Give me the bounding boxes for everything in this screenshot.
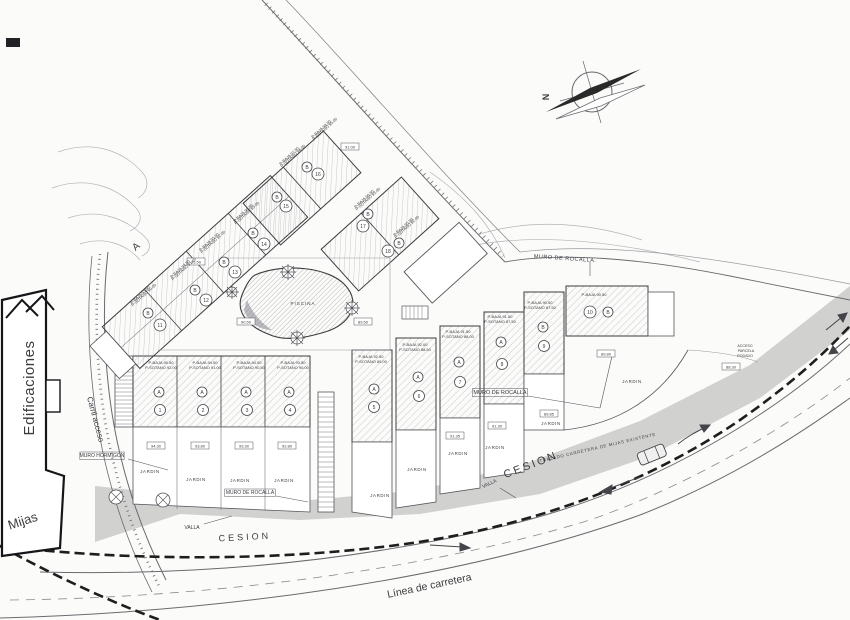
label-piscina: PISCINA [290, 301, 315, 306]
unit-4-basement-level: P-SOTANO 90.00 [277, 365, 309, 370]
garden-label: JARDIN [541, 421, 560, 426]
elevation-value: 89.80 [601, 351, 612, 356]
label-section-a: A [130, 241, 142, 254]
unit-17-number-circle-label: 17 [360, 224, 366, 230]
unit-15-number-circle-label: 15 [283, 204, 289, 210]
unit-1-basement-level: P-SOTANO 92.00 [145, 365, 177, 370]
unit-12-number-circle-label: 12 [203, 298, 209, 304]
elevation-value: 89.85 [544, 411, 555, 416]
label-muro-hormigon: MURO HORMIGON [80, 453, 125, 459]
unit-7-basement-level: P-SOTANO 88.00 [442, 334, 474, 339]
elevation-value: 93.30 [239, 443, 250, 448]
elevation-value: 94.30 [151, 443, 162, 448]
unit-4-number-circle-label: 4 [289, 408, 292, 414]
garden-label: JARDIN [485, 445, 504, 450]
site-plan-drawing: N 91.0095.5090.5089.5089.8088.3094.3093.… [0, 0, 850, 620]
unit-3-number-circle-label: 3 [246, 408, 249, 414]
garden-label: JARDIN [274, 478, 293, 483]
unit-6-number-circle-label: 6 [418, 394, 421, 400]
garden-label: JARDIN [370, 493, 389, 498]
elevation-value: 91.00 [345, 144, 356, 149]
unit-10-floor-level: P-BAJA 90.50 [582, 292, 608, 297]
elevation-value: 92.80 [282, 443, 293, 448]
label-linea-carretera: Línea de carretera [386, 571, 473, 601]
unit-6-basement-level: P-SOTANO 88.50 [399, 347, 431, 352]
label-muro-rocalla-3: MURO DE ROCALLA [226, 490, 275, 496]
elevation-value: 88.30 [726, 364, 737, 369]
unit-7-number-circle-label: 7 [459, 380, 462, 386]
elevation-value: 90.50 [241, 319, 252, 324]
unit-16-number-circle-label: 16 [315, 172, 321, 178]
site-plan-page: N 91.0095.5090.5089.5089.8088.3094.3093.… [0, 0, 850, 620]
label-valla-1: VALLA [184, 525, 200, 531]
unit-10-number-circle-label: 10 [587, 310, 593, 316]
garden-label: JARDIN [448, 451, 467, 456]
unit-1-number-circle-label: 1 [159, 408, 162, 414]
label-carril-acceso: Carril acceso [85, 396, 106, 444]
garden-label: JARDIN [622, 379, 641, 384]
unit-18-number-circle-label: 18 [385, 249, 391, 255]
elevation-value: 93.80 [195, 443, 206, 448]
label-acceso-2: PARCELA [738, 349, 755, 353]
garden-label: JARDIN [186, 477, 205, 482]
label-muro-rocalla-2: MURO DE ROCALLA [473, 390, 527, 396]
label-cesion-1: CESION [218, 531, 271, 544]
north-label: N [541, 94, 551, 101]
unit-2-number-circle-label: 2 [202, 408, 205, 414]
unit-11-number-circle-label: 11 [157, 323, 162, 329]
unit-5-number-circle-label: 5 [373, 405, 376, 411]
elevation-value: 89.50 [358, 319, 369, 324]
block-units-1-4 [115, 356, 310, 512]
garden-label: JARDIN [230, 478, 249, 483]
label-acceso-3: RODADO [737, 354, 753, 358]
unit-3-basement-level: P-SOTANO 90.50 [233, 365, 265, 370]
unit-8-basement-level: P-SOTANO 87.50 [484, 319, 516, 324]
elevation-value: 91.35 [450, 433, 461, 438]
garden-label: JARDIN [140, 469, 159, 474]
unit-13-number-circle-label: 13 [232, 270, 238, 276]
unit-8-number-circle-label: 8 [501, 362, 504, 368]
compass-rose: N [541, 61, 645, 123]
elevation-value: 91.30 [492, 423, 503, 428]
existing-buildings-outline [2, 38, 64, 556]
label-acceso-1: ACCESO [737, 344, 752, 348]
unit-9-basement-level: P-SOTANO 87.50 [524, 305, 556, 310]
unit-9-number-circle-label: 9 [543, 344, 546, 350]
label-muro-rocalla-1: MURO DE ROCALLA. [534, 254, 597, 264]
central-stairs [318, 392, 334, 512]
garden-label: JARDIN [407, 467, 426, 472]
unit-14-number-circle-label: 14 [261, 242, 267, 248]
label-edificaciones: Edificaciones [21, 341, 38, 436]
unit-5-basement-level: P-SOTANO 89.00 [355, 359, 387, 364]
unit-2-basement-level: P-SOTANO 91.00 [189, 365, 221, 370]
